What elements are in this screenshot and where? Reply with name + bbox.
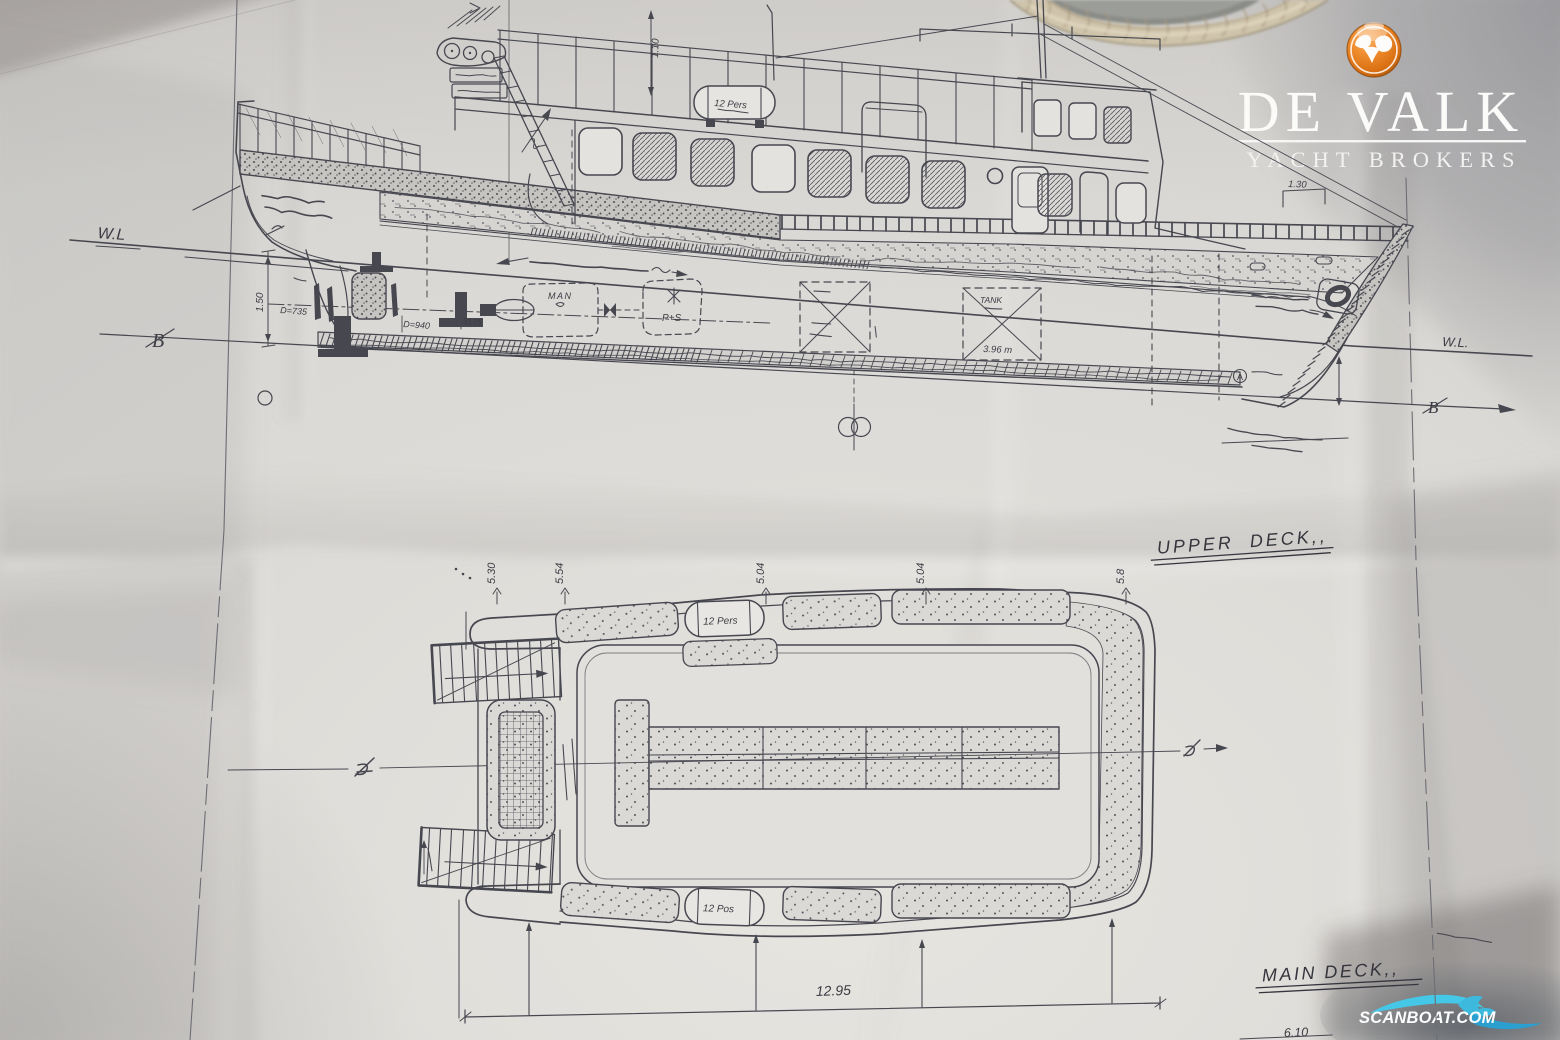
svg-text:5.8: 5.8 <box>1115 568 1127 584</box>
svg-text:B: B <box>1428 398 1439 417</box>
svg-text:TANK: TANK <box>980 295 1002 305</box>
svg-text:3175: 3175 <box>462 316 484 327</box>
svg-text:1.10: 1.10 <box>650 38 662 58</box>
svg-text:W.L.: W.L. <box>1442 334 1469 350</box>
svg-text:MAN: MAN <box>548 291 573 301</box>
svg-text:12 Pos: 12 Pos <box>703 903 735 915</box>
svg-text:SCANBOAT.COM: SCANBOAT.COM <box>1359 1009 1497 1027</box>
svg-text:1.50: 1.50 <box>255 292 266 312</box>
svg-text:12 Pers: 12 Pers <box>703 616 738 628</box>
svg-text:3.96 m: 3.96 m <box>983 344 1012 356</box>
svg-text:5.04: 5.04 <box>755 563 767 584</box>
svg-text:W.L: W.L <box>97 225 126 244</box>
svg-text:5.04: 5.04 <box>915 563 927 584</box>
svg-text:12.95: 12.95 <box>816 982 852 999</box>
svg-text:D=735: D=735 <box>280 305 308 317</box>
svg-text:5.30: 5.30 <box>486 562 498 584</box>
svg-text:DE VALK: DE VALK <box>1238 79 1524 144</box>
svg-text:B: B <box>152 330 164 352</box>
svg-text:YACHT BROKERS: YACHT BROKERS <box>1247 147 1522 172</box>
svg-text:5.54: 5.54 <box>554 563 566 584</box>
svg-text:6.10: 6.10 <box>1284 1025 1309 1040</box>
svg-text:D=940: D=940 <box>403 319 430 331</box>
svg-text:A: A <box>1237 372 1243 382</box>
svg-text:1.30: 1.30 <box>1288 179 1308 191</box>
svg-text:P+S: P+S <box>662 313 682 324</box>
